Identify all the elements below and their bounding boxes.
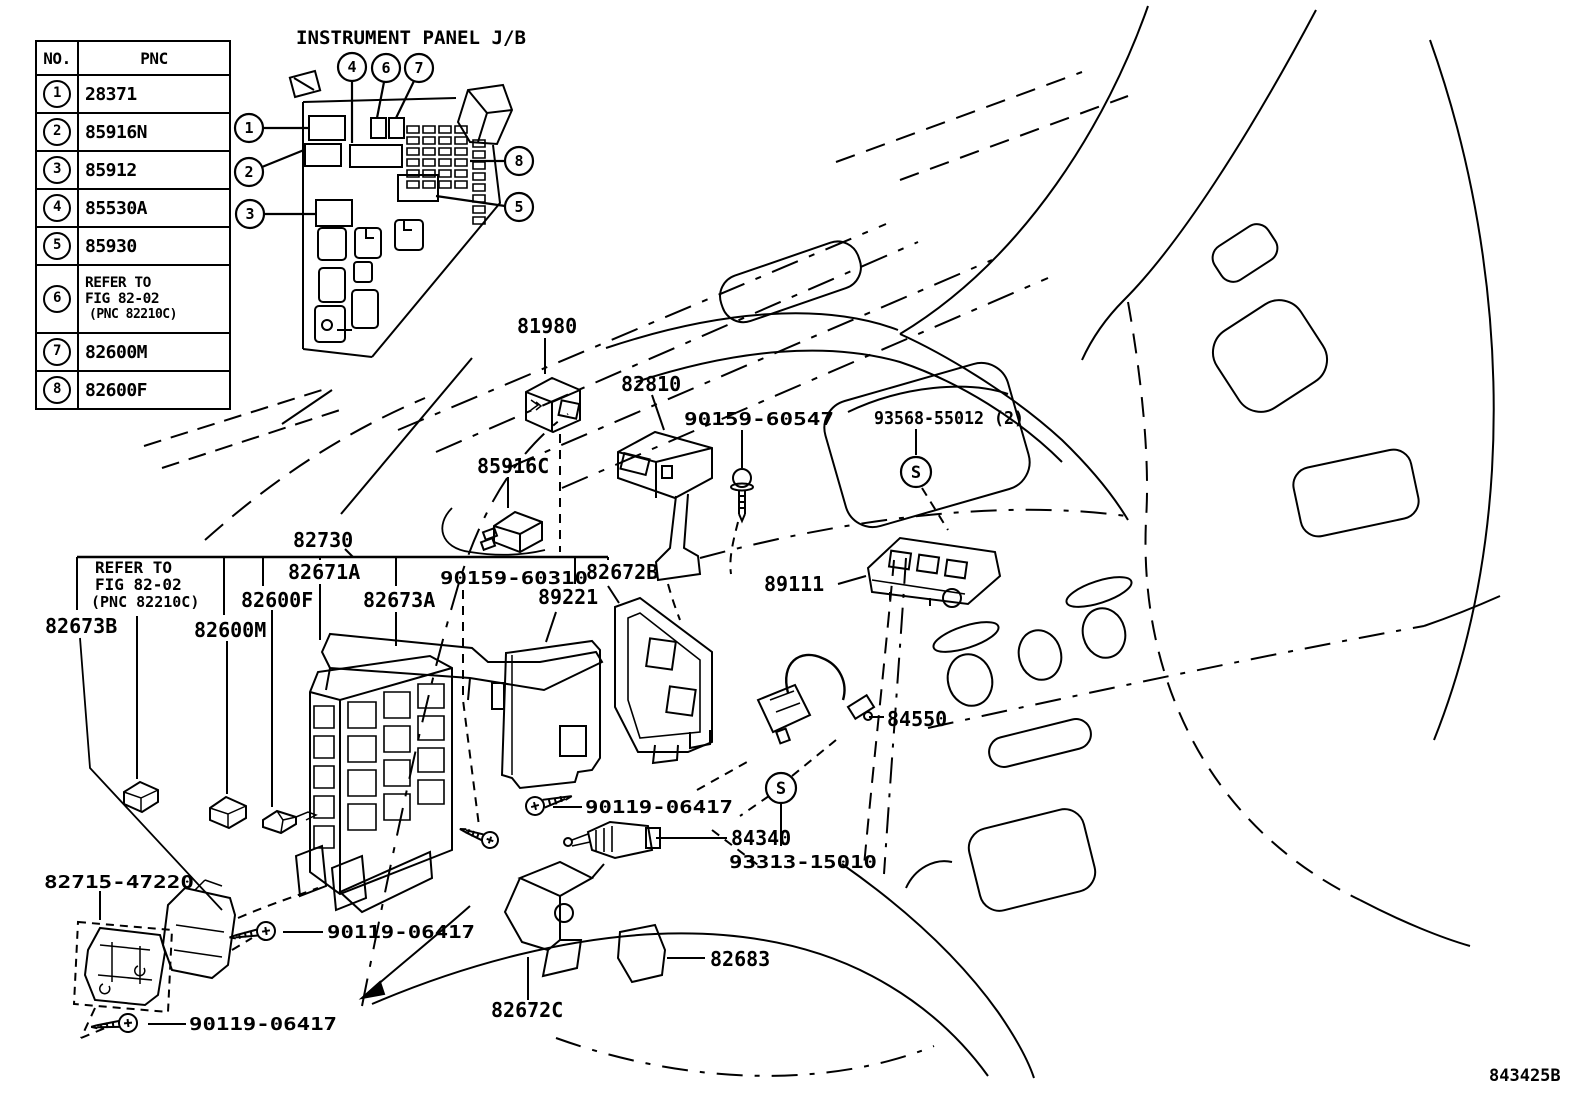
frame-outer bbox=[615, 598, 712, 752]
sketch-line bbox=[697, 762, 747, 790]
hvac-dial bbox=[1013, 625, 1067, 684]
leader bbox=[838, 576, 866, 584]
jb-flag bbox=[458, 85, 512, 144]
relay-edges bbox=[494, 522, 542, 552]
ecu-body bbox=[502, 641, 600, 788]
jb-relay-slot bbox=[371, 118, 386, 138]
jb-relay-slot bbox=[350, 145, 402, 167]
part-84550-wire bbox=[758, 655, 874, 743]
part-clip-82600F bbox=[263, 811, 316, 833]
relay-pin bbox=[481, 538, 495, 550]
part-82672B-bracket bbox=[615, 598, 712, 763]
vent-slot bbox=[1063, 571, 1134, 613]
s-symbol-label: S bbox=[776, 779, 786, 799]
leader bbox=[652, 395, 664, 430]
callout-number: 2 bbox=[244, 163, 253, 181]
part-label-90159-60547: 90159-60547 bbox=[684, 409, 834, 430]
callout-number: 4 bbox=[347, 58, 356, 76]
relay-body bbox=[494, 512, 542, 552]
relay-edges bbox=[526, 390, 580, 432]
jb-connector bbox=[354, 262, 372, 282]
part-label-82672C: 82672C bbox=[491, 998, 563, 1022]
drawing-number: 843425B bbox=[1489, 1066, 1561, 1086]
jb-flag-fold bbox=[468, 90, 512, 142]
part-82715-47220-bracket bbox=[74, 880, 235, 1012]
jb-connector-notch bbox=[366, 228, 374, 238]
s-symbol-label: S bbox=[911, 463, 921, 483]
sketch-line bbox=[372, 933, 988, 1076]
sketch-line bbox=[836, 72, 1082, 162]
bracket-flange bbox=[520, 862, 592, 896]
sketch-line bbox=[928, 626, 1424, 728]
callout-leader bbox=[436, 196, 505, 206]
part-label-82673B: 82673B bbox=[45, 614, 117, 638]
sketch-line bbox=[398, 224, 886, 430]
part-label-82673A: 82673A bbox=[363, 588, 435, 612]
relay-connector bbox=[559, 400, 580, 418]
wire-loop bbox=[786, 655, 844, 700]
vent-slot bbox=[930, 616, 1001, 658]
bracket-marks bbox=[100, 966, 145, 994]
part-screw-90119-06417 bbox=[524, 787, 574, 817]
radio-slot bbox=[986, 716, 1094, 770]
sketch-line bbox=[1424, 596, 1500, 626]
sketch-line bbox=[436, 242, 918, 452]
jb-connector bbox=[315, 306, 345, 342]
module-bracket bbox=[656, 494, 700, 580]
sketch-line bbox=[1082, 10, 1316, 360]
part-label-82810: 82810 bbox=[621, 372, 681, 396]
sketch-line bbox=[144, 390, 322, 446]
switch-button bbox=[917, 555, 939, 574]
callout-leader bbox=[262, 150, 304, 167]
connector-edges bbox=[210, 806, 246, 828]
sketch-line bbox=[162, 410, 340, 468]
part-81980-relay bbox=[526, 378, 580, 432]
glovebox-opening bbox=[1290, 446, 1422, 539]
jb-connector-notch bbox=[404, 220, 412, 230]
part-label-90119-06417: 90119-06417 bbox=[189, 1014, 337, 1035]
part-label-84550: 84550 bbox=[887, 707, 947, 731]
frame-tab bbox=[666, 686, 695, 715]
jb-screw-hole bbox=[322, 320, 332, 330]
refer-note-line2: FIG 82-02 bbox=[95, 575, 182, 594]
jb-relay-slot bbox=[309, 116, 345, 140]
s-symbols: S S bbox=[766, 457, 931, 803]
callout-number: 1 bbox=[244, 119, 253, 137]
part-label-89221: 89221 bbox=[538, 585, 598, 609]
leader-dashed bbox=[463, 590, 479, 826]
wire-terminal bbox=[848, 695, 874, 719]
switch-body bbox=[868, 538, 1000, 604]
part-label-90119-06417: 90119-06417 bbox=[327, 922, 475, 943]
callout-number: 7 bbox=[414, 59, 423, 77]
jb-outline bbox=[303, 349, 372, 357]
leader-dashed bbox=[730, 522, 738, 574]
part-82730-junction-block bbox=[296, 634, 602, 912]
jb-relay-slot bbox=[305, 144, 341, 166]
switch-button bbox=[889, 551, 911, 570]
console-opening bbox=[965, 805, 1100, 915]
jb-cavities bbox=[314, 684, 444, 848]
part-label-81980: 81980 bbox=[517, 314, 577, 338]
switch-button bbox=[945, 560, 967, 579]
leader-dashed bbox=[922, 488, 948, 530]
sketch-line bbox=[900, 96, 1128, 180]
bracket2-body bbox=[163, 888, 235, 978]
callout-number: 3 bbox=[245, 205, 254, 223]
cluster-opening bbox=[818, 356, 1036, 533]
ecu-tab bbox=[492, 683, 504, 709]
jb-relay-slot bbox=[316, 200, 352, 226]
sketch-line bbox=[1430, 40, 1494, 740]
part-label-84340: 84340 bbox=[731, 826, 791, 850]
part-82810-module bbox=[618, 432, 712, 580]
jb-relay-slot bbox=[389, 118, 404, 138]
switch-edge bbox=[872, 580, 965, 594]
part-89221-ecu bbox=[492, 641, 600, 788]
connector-edges bbox=[124, 790, 158, 812]
sketch-line bbox=[376, 906, 470, 986]
part-label-82730: 82730 bbox=[293, 528, 353, 552]
part-label-82672B: 82672B bbox=[586, 560, 658, 584]
screw-shaft bbox=[530, 792, 573, 811]
part-label-82683: 82683 bbox=[710, 947, 770, 971]
sketch-line bbox=[205, 398, 425, 540]
part-screw-90159-60547 bbox=[731, 469, 753, 521]
callout-number: 6 bbox=[381, 59, 390, 77]
part-85916C-relay bbox=[442, 508, 545, 555]
jb-connector bbox=[395, 220, 423, 250]
jb-connector bbox=[319, 268, 345, 302]
refer-note-line3: (PNC 82210C) bbox=[91, 593, 199, 611]
switch-tip bbox=[564, 838, 572, 846]
part-label-82600M: 82600M bbox=[194, 618, 266, 642]
sketch-line bbox=[606, 313, 898, 348]
wire-pin bbox=[776, 729, 790, 744]
module-face bbox=[620, 453, 649, 475]
inset-junction-box bbox=[290, 71, 512, 514]
bracket-lines bbox=[98, 942, 152, 984]
leader-dashed bbox=[668, 584, 680, 620]
frame-tab bbox=[646, 638, 676, 669]
inset-callouts bbox=[235, 53, 533, 228]
jb-to-bracket-line bbox=[341, 358, 472, 514]
sketch-line bbox=[556, 1038, 934, 1076]
part-screw-90119-06417 bbox=[228, 921, 276, 947]
screw-shaft bbox=[738, 490, 746, 521]
callout-number: 8 bbox=[514, 152, 523, 170]
sketch-line bbox=[906, 861, 952, 888]
bracket-hole bbox=[555, 904, 573, 922]
diagram-canvas: 1 2 3 4 6 7 8 5 bbox=[0, 0, 1592, 1099]
bracket-body bbox=[85, 928, 165, 1005]
sketch-line bbox=[842, 864, 1034, 1078]
part-82672C-bracket bbox=[505, 862, 604, 976]
callout-number: 5 bbox=[514, 198, 523, 216]
leader-dashed bbox=[238, 888, 318, 918]
inset-title: INSTRUMENT PANEL J/B bbox=[296, 27, 526, 49]
frame-feet bbox=[653, 730, 710, 763]
hvac-dial bbox=[1077, 603, 1131, 662]
part-screw-90119-06417 bbox=[90, 1013, 138, 1036]
part-82683-pad bbox=[618, 925, 665, 982]
jb-fuse-grid bbox=[407, 126, 485, 224]
sketch-line bbox=[900, 6, 1148, 334]
jb-connector bbox=[318, 228, 346, 260]
part-label-82600F: 82600F bbox=[241, 588, 313, 612]
screw-shaft bbox=[91, 1019, 133, 1031]
frame-inner bbox=[628, 613, 700, 738]
part-connector-82673B bbox=[124, 782, 158, 812]
leader bbox=[546, 612, 556, 642]
sketch-line bbox=[508, 260, 992, 468]
module-window bbox=[662, 466, 672, 478]
part-84340-switch bbox=[564, 822, 660, 858]
part-89111-switch bbox=[868, 538, 1000, 606]
sketch-line bbox=[1128, 302, 1360, 900]
part-connector-82600M bbox=[210, 797, 246, 828]
part-label-90119-06417: 90119-06417 bbox=[585, 797, 733, 818]
part-label-82671A: 82671A bbox=[288, 560, 360, 584]
part-label-89111: 89111 bbox=[764, 572, 824, 596]
side-opening bbox=[1203, 290, 1337, 422]
jb-connector bbox=[352, 290, 378, 328]
part-label-85916C: 85916C bbox=[477, 454, 549, 478]
part-label-82715-47220: 82715-47220 bbox=[44, 872, 194, 893]
leader bbox=[80, 638, 222, 910]
side-vent bbox=[1207, 219, 1282, 287]
switch-body bbox=[588, 822, 652, 858]
relay-clip bbox=[531, 400, 541, 410]
part-screw-90159-60310 bbox=[457, 822, 500, 851]
part-label-93568-55012: 93568-55012 (2) bbox=[874, 408, 1024, 429]
leader-dashed bbox=[740, 740, 836, 816]
part-label-93313-15010: 93313-15010 bbox=[729, 852, 877, 873]
hvac-dial bbox=[942, 649, 998, 711]
ecu-connector bbox=[560, 726, 586, 756]
screw-shaft bbox=[459, 826, 495, 845]
jb-connector bbox=[355, 228, 381, 258]
sketch-line bbox=[1360, 900, 1470, 946]
jb-tab-fold bbox=[294, 78, 314, 90]
parts-diagram-page: NO. PNC 1 28371 2 85916N 3 85912 4 85530… bbox=[0, 0, 1592, 1099]
jb-outline bbox=[372, 145, 500, 357]
